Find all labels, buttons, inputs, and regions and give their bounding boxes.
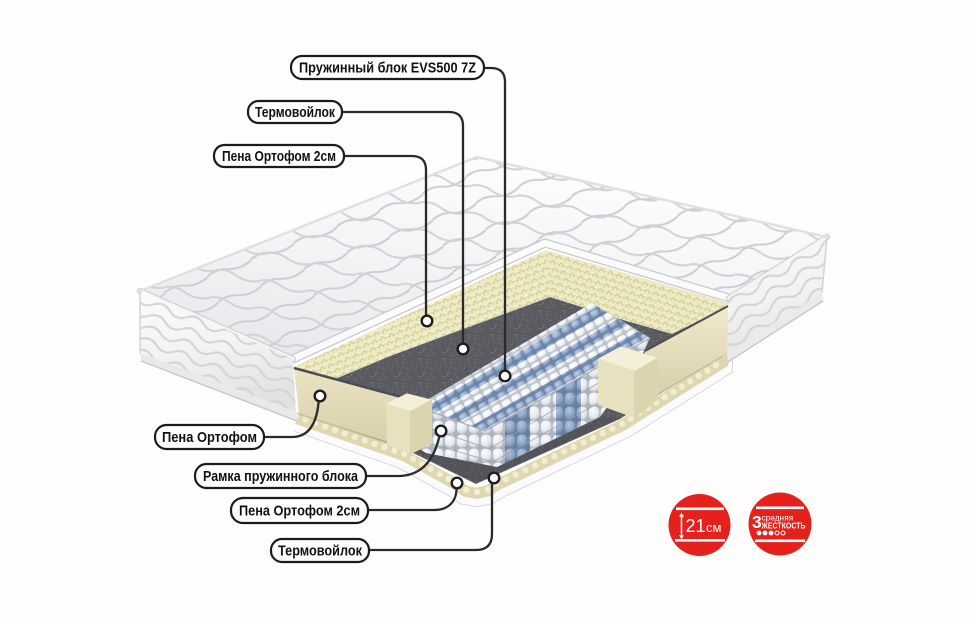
svg-text:Пена Ортофом: Пена Ортофом	[162, 429, 257, 446]
svg-text:3: 3	[752, 512, 762, 532]
svg-text:Термовойлок: Термовойлок	[278, 543, 362, 560]
svg-text:Пена Ортофом 2см: Пена Ортофом 2см	[239, 503, 360, 520]
svg-text:Пружинный блок EVS500 7Z: Пружинный блок EVS500 7Z	[299, 60, 476, 77]
svg-text:Рамка пружинного блока: Рамка пружинного блока	[203, 468, 359, 485]
svg-text:Термовойлок: Термовойлок	[255, 104, 335, 121]
svg-text:ЖЕСТКОСТЬ: ЖЕСТКОСТЬ	[761, 522, 806, 531]
svg-text:Пена Ортофом 2см: Пена Ортофом 2см	[222, 148, 336, 165]
